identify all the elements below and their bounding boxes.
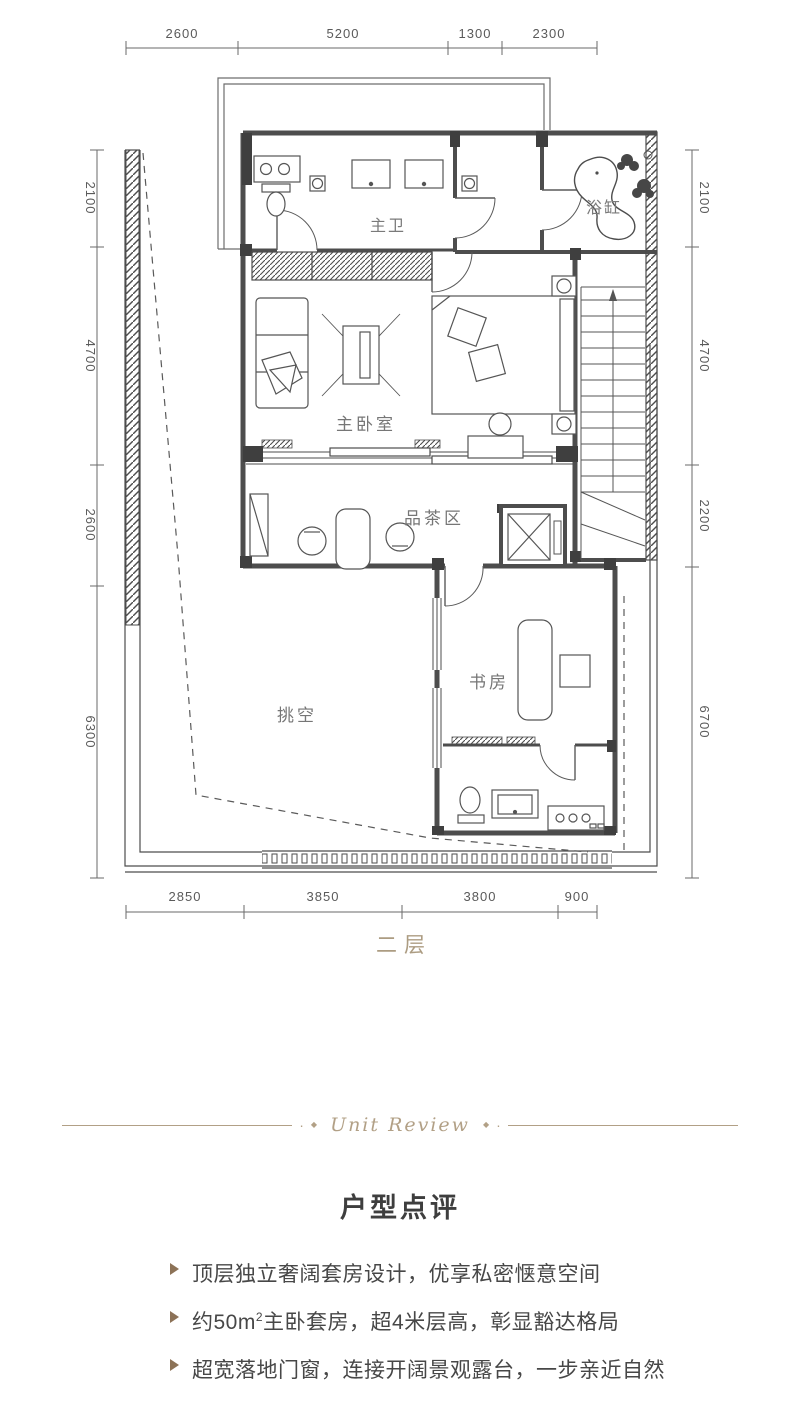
dim-top: 2600 5200 1300 2300	[126, 26, 597, 55]
review-bullet: 顶层独立奢阔套房设计，优享私密惬意空间	[170, 1256, 665, 1288]
dim-label: 2300	[533, 26, 566, 41]
curtain-rail-icon	[415, 440, 440, 448]
dim-label: 1300	[459, 26, 492, 41]
dim-label: 3850	[307, 889, 340, 904]
stairs-icon	[581, 287, 645, 560]
dim-label: 6300	[83, 716, 98, 749]
section-divider: · ◆ Unit Review ◆ ·	[62, 1114, 738, 1136]
review-title: 户型点评	[0, 1186, 800, 1225]
dim-right: 2100 4700 2200 6700	[685, 150, 712, 878]
page: 2600 5200 1300 2300 2100 4700 2600 6300 …	[0, 0, 800, 1422]
room-label-bathtub: 浴缸	[586, 198, 622, 217]
review-bullet: 超宽落地门窗，连接开阔景观露台，一步亲近自然	[170, 1352, 665, 1384]
tv-icon	[322, 314, 400, 396]
dim-label: 4700	[83, 340, 98, 373]
bullet-triangle-icon	[170, 1311, 179, 1323]
study-furniture	[518, 620, 590, 720]
divider-diamond-icon: ◆	[311, 1121, 317, 1129]
master-bath	[254, 156, 477, 216]
bullet-triangle-icon	[170, 1359, 179, 1371]
bullet-text: 超宽落地门窗，连接开阔景观露台，一步亲近自然	[192, 1352, 665, 1384]
toilet-icon	[458, 787, 484, 823]
bathtub-terrace	[575, 151, 654, 239]
divider-label: Unit Review	[324, 1114, 476, 1136]
desk-icon	[518, 620, 552, 720]
dim-label: 3800	[464, 889, 497, 904]
bullet-text: 顶层独立奢阔套房设计，优享私密惬意空间	[192, 1256, 601, 1288]
divider-line-left	[62, 1125, 292, 1126]
bullet-triangle-icon	[170, 1263, 179, 1275]
bathtub-icon	[575, 157, 635, 239]
sink-icon	[352, 160, 443, 188]
divider-dot-icon: ·	[496, 1118, 501, 1132]
curtain-rail-icon	[262, 440, 292, 448]
room-label-master-bath: 主卫	[370, 217, 406, 235]
room-label-void: 挑空	[277, 706, 317, 725]
tea-area-furniture	[250, 494, 414, 569]
wall-chunks	[240, 131, 616, 835]
sofa-icon	[256, 298, 308, 408]
floor-label: 二层	[376, 934, 432, 957]
terrace-railing	[262, 851, 612, 868]
dim-left: 2100 4700 2600 6300	[83, 150, 104, 878]
dim-label: 6700	[697, 706, 712, 739]
floor-drain-icon	[310, 176, 477, 191]
dim-label: 5200	[327, 26, 360, 41]
bullet-text: 约50m2主卧套房，超4米层高，彰显豁达格局	[192, 1304, 619, 1336]
sliding-door-icon	[507, 737, 535, 744]
cabinet-icon	[250, 494, 268, 556]
study-bathroom	[458, 787, 604, 830]
sink-counter-icon	[548, 806, 604, 830]
review-bullet-list: 顶层独立奢阔套房设计，优享私密惬意空间 约50m2主卧套房，超4米层高，彰显豁达…	[170, 1256, 665, 1400]
dim-label: 2100	[697, 182, 712, 215]
dim-label: 900	[565, 889, 590, 904]
dim-label: 2600	[83, 509, 98, 542]
dim-label: 2200	[697, 500, 712, 533]
divider-line-right	[508, 1125, 738, 1126]
wardrobe-icon	[252, 252, 432, 280]
bed-icon	[432, 296, 575, 414]
window-band	[246, 448, 575, 464]
dim-bottom: 2850 3850 3800 900	[126, 889, 597, 919]
elevator-icon	[501, 506, 565, 566]
walls	[243, 133, 657, 833]
dim-label: 2600	[166, 26, 199, 41]
master-bedroom-furniture	[256, 276, 576, 458]
room-label-study: 书房	[469, 673, 509, 692]
sliding-door-icon	[452, 737, 502, 744]
vanity-icon	[492, 790, 538, 818]
review-bullet: 约50m2主卧套房，超4米层高，彰显豁达格局	[170, 1304, 665, 1336]
vanity-icon	[254, 156, 300, 182]
divider-dot-icon: ·	[299, 1118, 304, 1132]
dim-label: 2100	[83, 182, 98, 215]
divider-diamond-icon: ◆	[483, 1121, 489, 1129]
room-label-tea-area: 品茶区	[404, 509, 464, 528]
dim-label: 2850	[169, 889, 202, 904]
room-label-master-bedroom: 主卧室	[336, 415, 396, 434]
side-table-icon	[560, 655, 590, 687]
stool-icon	[468, 413, 523, 458]
dim-label: 4700	[697, 340, 712, 373]
floor-plan: 2600 5200 1300 2300 2100 4700 2600 6300 …	[0, 0, 800, 985]
tea-table-icon	[336, 509, 370, 569]
